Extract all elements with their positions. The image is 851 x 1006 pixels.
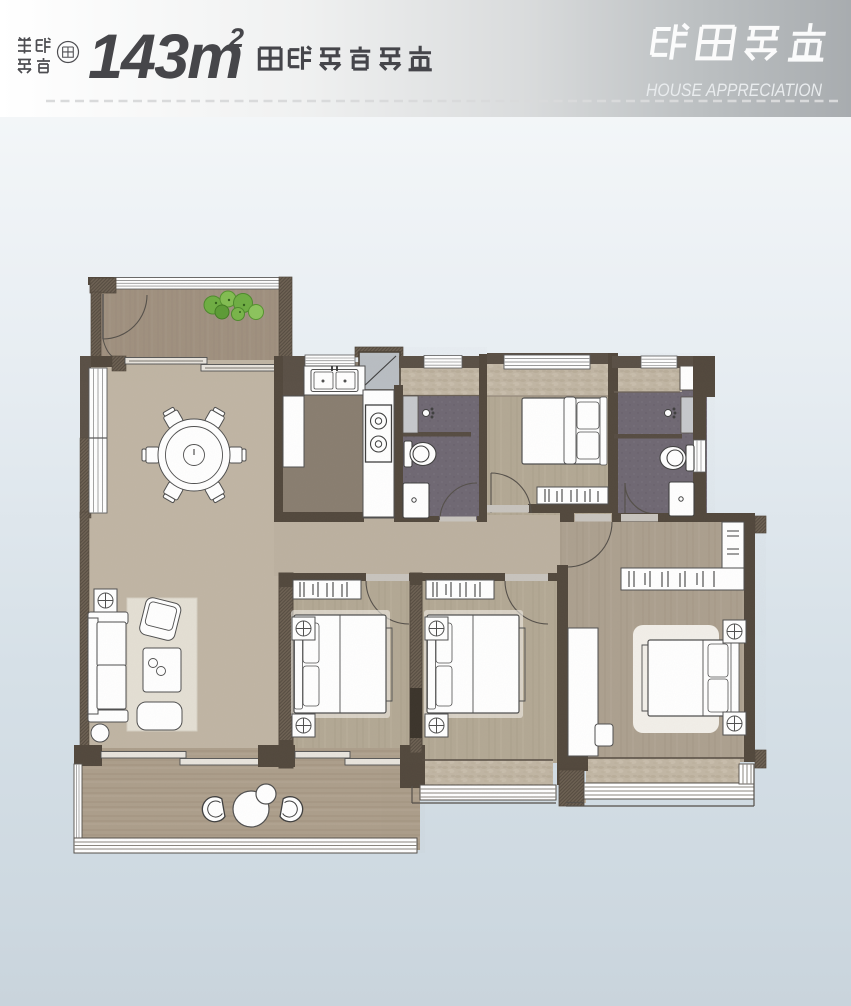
svg-text:2: 2 bbox=[228, 23, 244, 53]
svg-text:143m: 143m bbox=[88, 22, 241, 92]
svg-text:HOUSE APPRECIATION: HOUSE APPRECIATION bbox=[646, 80, 823, 100]
